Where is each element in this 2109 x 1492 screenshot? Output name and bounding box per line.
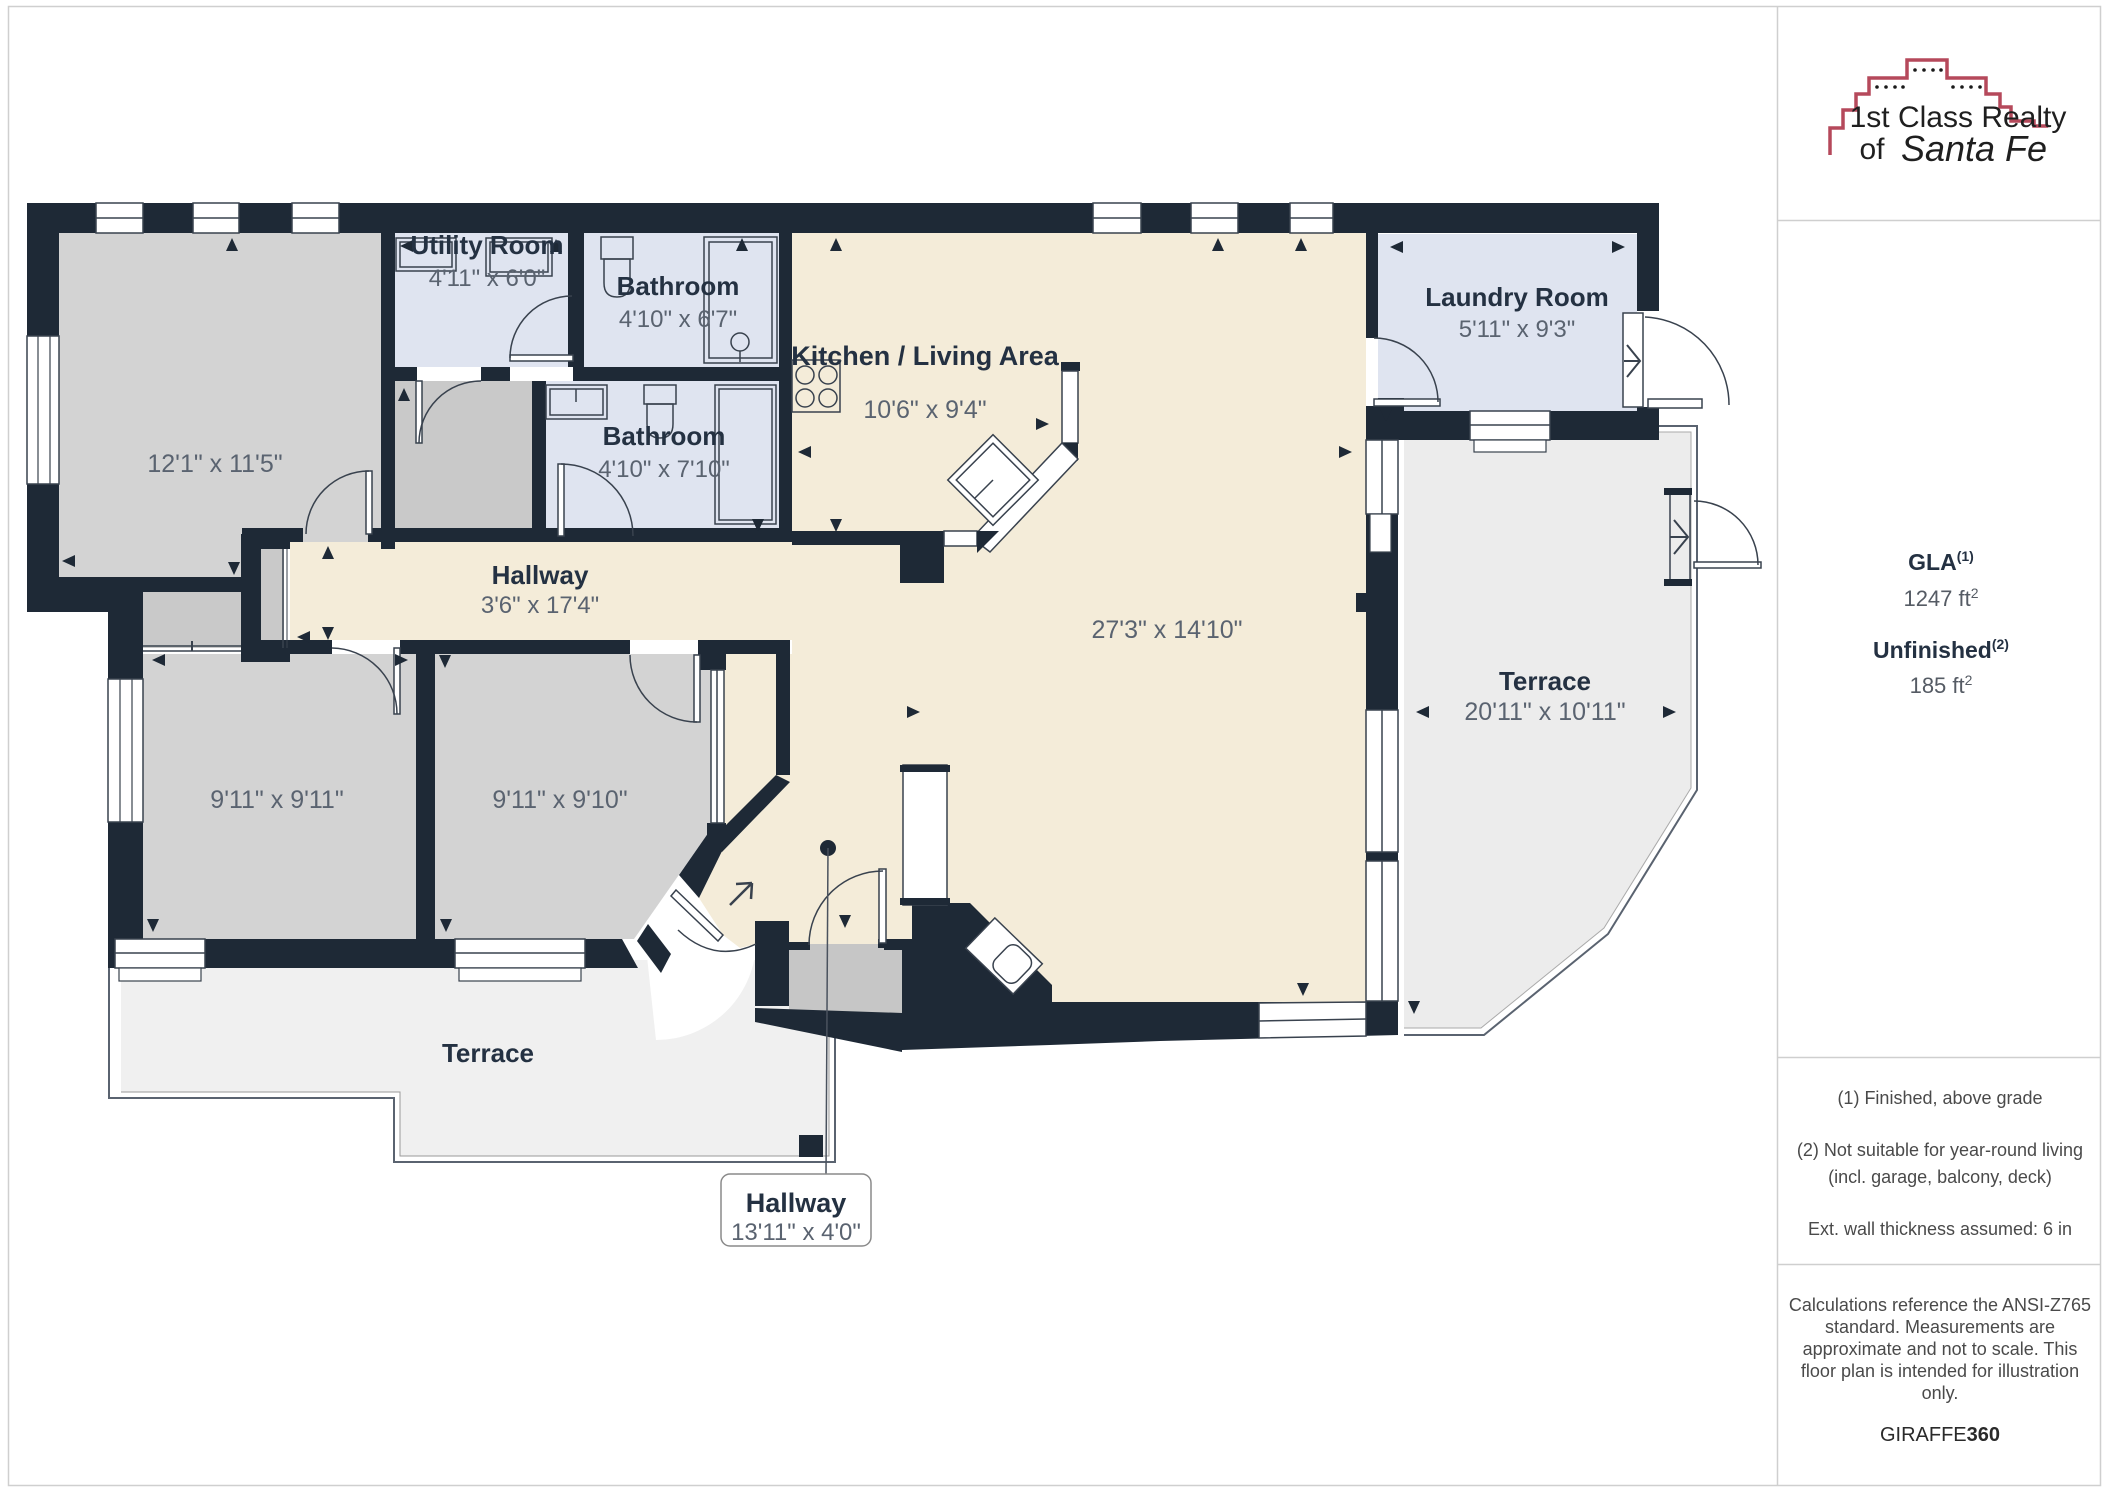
svg-text:Bathroom: Bathroom (617, 271, 740, 301)
svg-text:20'11" x 10'11": 20'11" x 10'11" (1464, 698, 1625, 726)
svg-text:Terrace: Terrace (442, 1038, 534, 1068)
svg-text:Ext. wall thickness assumed: 6: Ext. wall thickness assumed: 6 in (1808, 1219, 2072, 1239)
svg-text:4'11" x 6'0": 4'11" x 6'0" (429, 265, 546, 292)
svg-text:approximate and not to scale.: approximate and not to scale. This (1803, 1339, 2078, 1359)
svg-text:floor plan is intended for ill: floor plan is intended for illustration (1801, 1361, 2079, 1381)
svg-text:GIRAFFE360: GIRAFFE360 (1880, 1424, 2000, 1446)
svg-text:27'3" x 14'10": 27'3" x 14'10" (1091, 616, 1242, 644)
svg-text:3'6" x 17'4": 3'6" x 17'4" (481, 592, 599, 619)
svg-text:12'1" x 11'5": 12'1" x 11'5" (147, 450, 282, 478)
svg-text:only.: only. (1922, 1383, 1959, 1403)
svg-text:Terrace: Terrace (1499, 666, 1591, 696)
svg-text:185 ft2: 185 ft2 (1910, 672, 1973, 698)
svg-text:of: of (1859, 133, 1885, 166)
svg-text:Santa Fe: Santa Fe (1901, 128, 2047, 169)
svg-text:4'10" x 7'10": 4'10" x 7'10" (598, 456, 730, 483)
svg-text:Hallway: Hallway (492, 560, 589, 590)
svg-text:Calculations reference the ANS: Calculations reference the ANSI-Z765 (1789, 1295, 2091, 1315)
svg-text:(incl. garage, balcony, deck): (incl. garage, balcony, deck) (1828, 1167, 2052, 1187)
svg-text:Utility Room: Utility Room (410, 230, 563, 260)
svg-text:standard. Measurements are: standard. Measurements are (1825, 1317, 2055, 1337)
svg-text:(2) Not suitable for year-roun: (2) Not suitable for year-round living (1797, 1140, 2083, 1160)
svg-text:10'6" x 9'4": 10'6" x 9'4" (863, 396, 986, 424)
svg-text:13'11" x 4'0": 13'11" x 4'0" (731, 1219, 861, 1246)
svg-text:5'11" x 9'3": 5'11" x 9'3" (1459, 316, 1576, 343)
svg-text:Hallway: Hallway (746, 1188, 847, 1218)
svg-text:Bathroom: Bathroom (603, 421, 726, 451)
svg-text:9'11" x 9'10": 9'11" x 9'10" (492, 786, 627, 814)
svg-text:(1) Finished, above grade: (1) Finished, above grade (1837, 1088, 2042, 1108)
svg-text:4'10" x 6'7": 4'10" x 6'7" (619, 306, 737, 333)
svg-text:Unfinished(2): Unfinished(2) (1873, 636, 2009, 663)
svg-text:Kitchen / Living Area: Kitchen / Living Area (791, 341, 1060, 371)
svg-text:9'11" x 9'11": 9'11" x 9'11" (210, 786, 343, 814)
svg-text:1247 ft2: 1247 ft2 (1903, 585, 1978, 611)
svg-text:Laundry Room: Laundry Room (1425, 282, 1608, 312)
